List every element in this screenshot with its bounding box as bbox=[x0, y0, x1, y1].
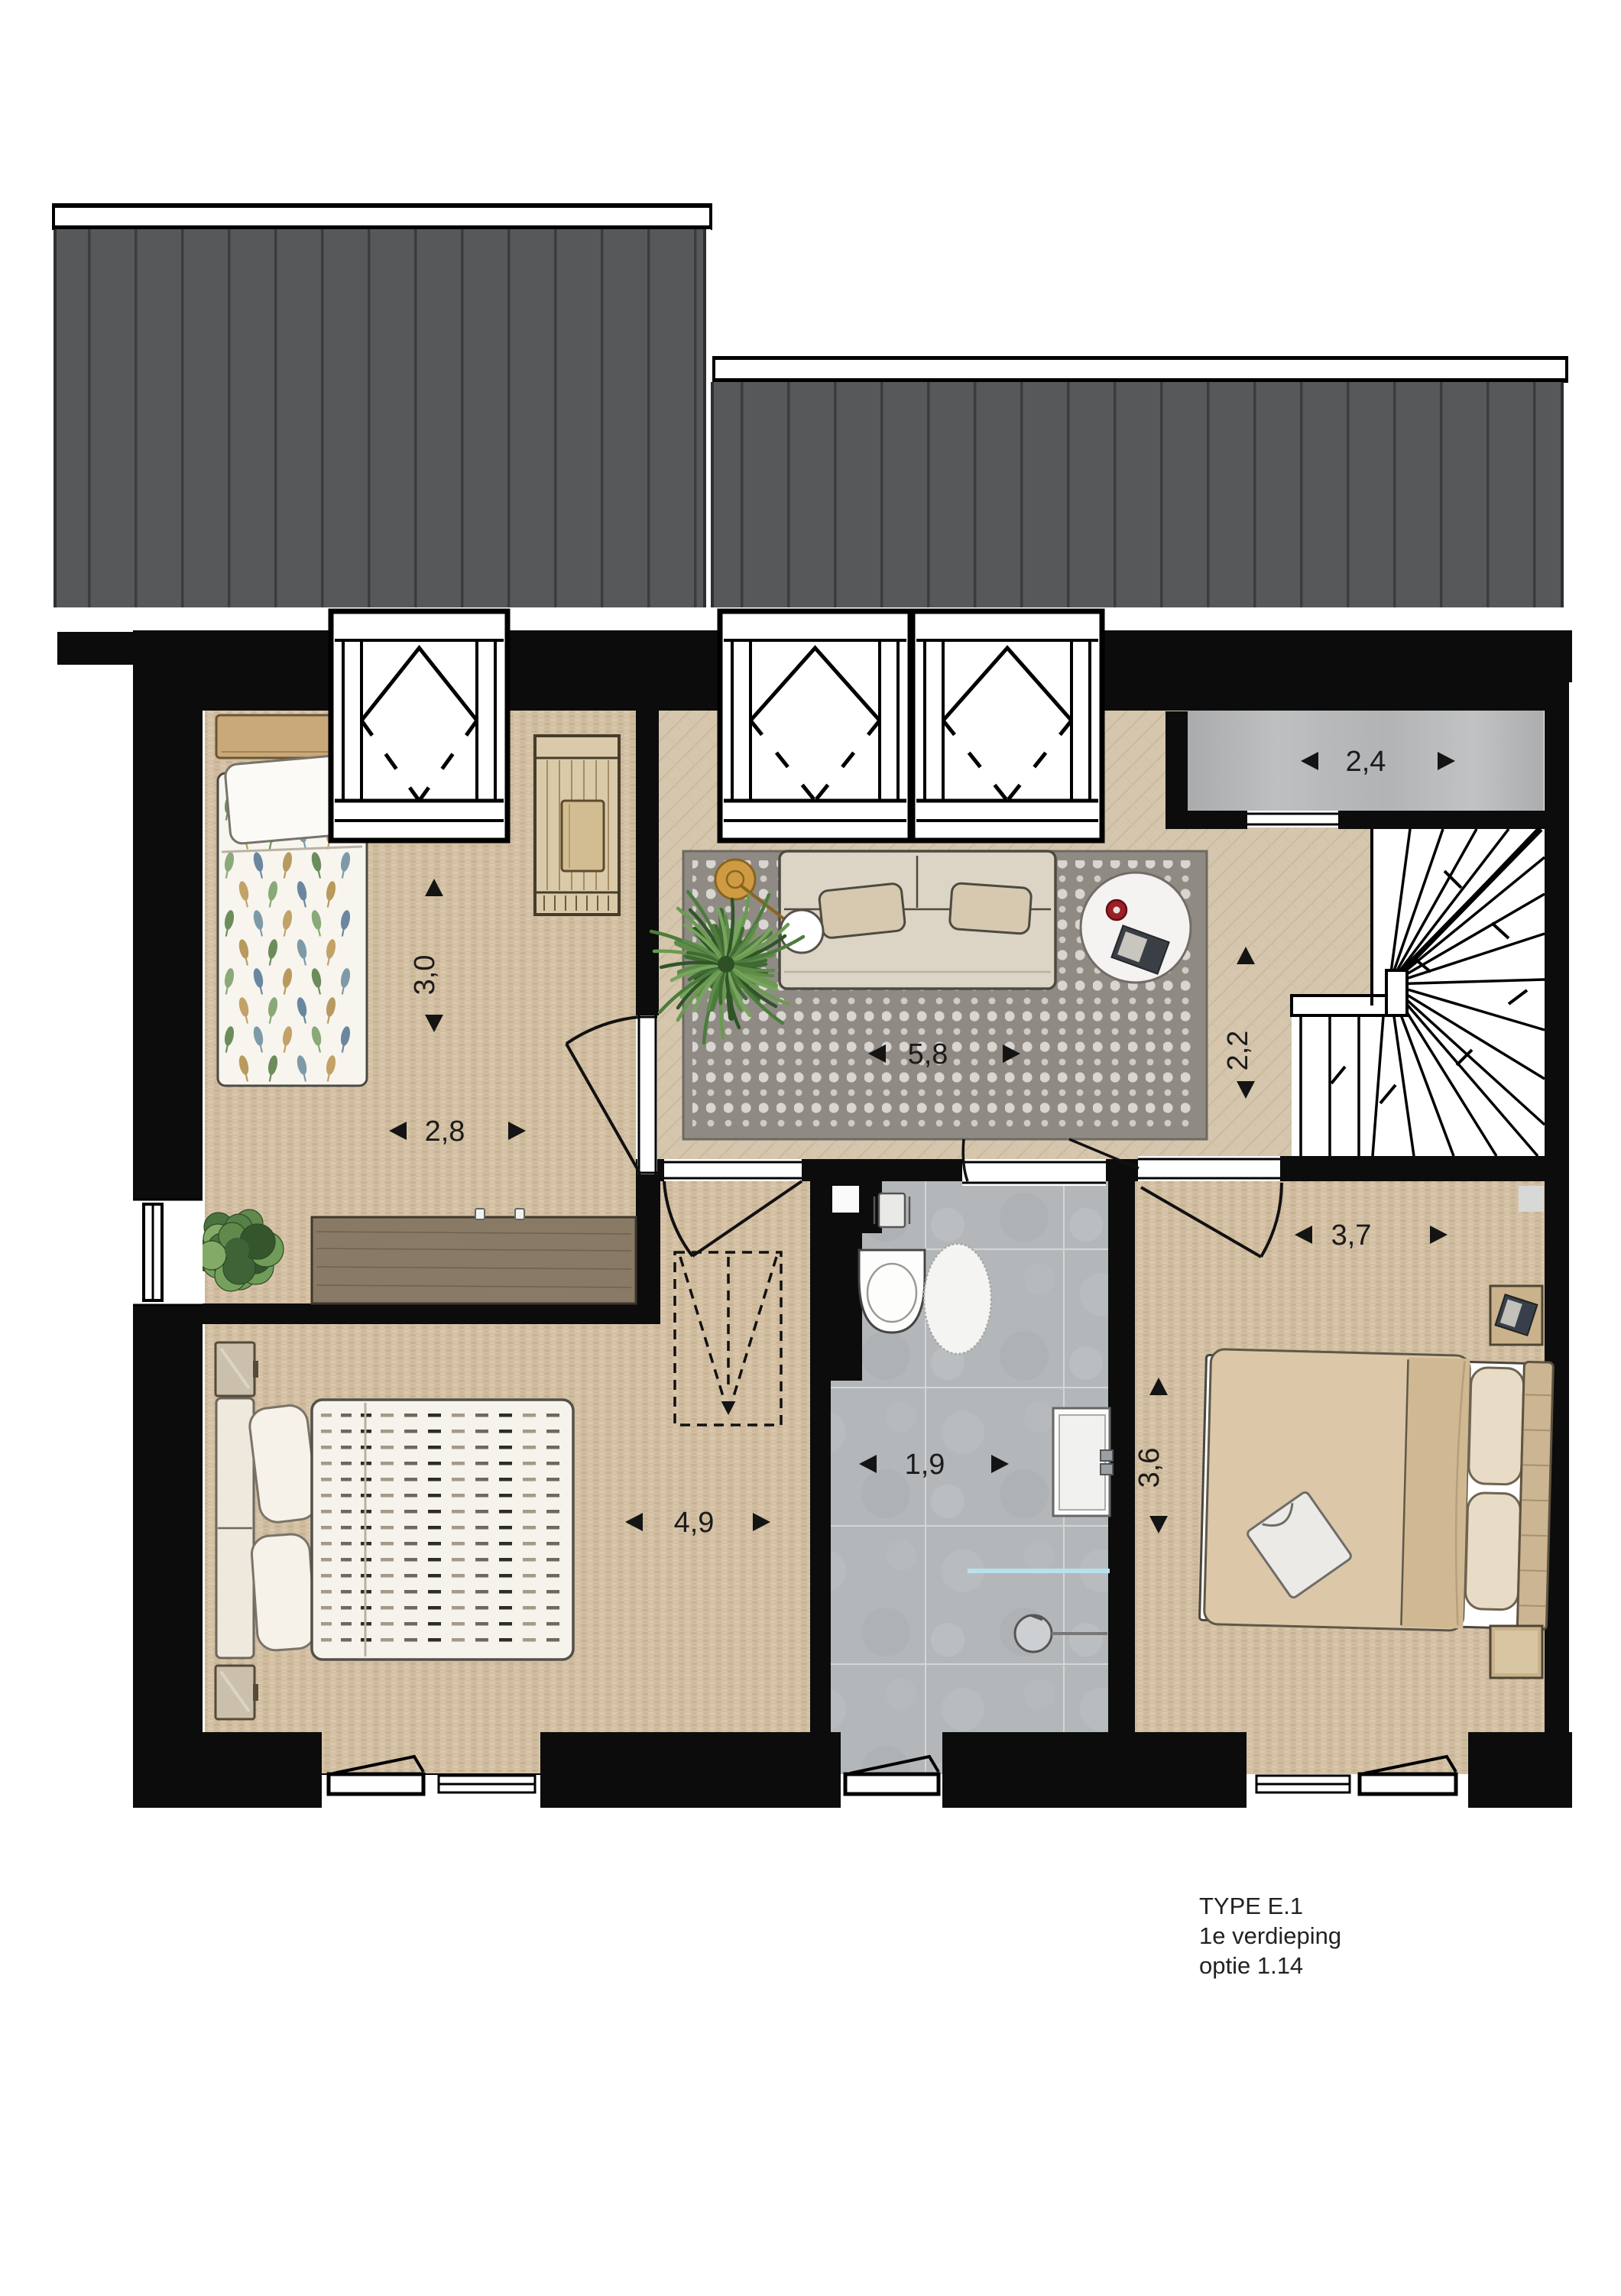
svg-text:4,9: 4,9 bbox=[674, 1507, 715, 1539]
svg-text:3,7: 3,7 bbox=[1331, 1219, 1372, 1252]
svg-text:2,8: 2,8 bbox=[425, 1116, 465, 1148]
svg-text:3,6: 3,6 bbox=[1133, 1448, 1165, 1488]
svg-text:2,4: 2,4 bbox=[1346, 746, 1386, 778]
svg-text:5,8: 5,8 bbox=[908, 1038, 948, 1070]
svg-text:optie 1.14: optie 1.14 bbox=[1199, 1952, 1303, 1979]
svg-text:1e verdieping: 1e verdieping bbox=[1199, 1922, 1341, 1949]
svg-text:2,2: 2,2 bbox=[1222, 1031, 1254, 1071]
svg-text:3,0: 3,0 bbox=[409, 955, 441, 996]
svg-text:TYPE E.1: TYPE E.1 bbox=[1199, 1893, 1303, 1919]
svg-text:1,9: 1,9 bbox=[905, 1449, 945, 1481]
